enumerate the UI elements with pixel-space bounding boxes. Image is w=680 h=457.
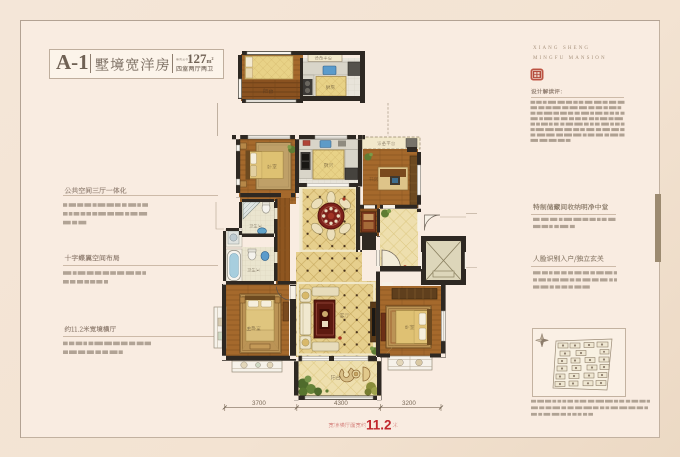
svg-text:3700: 3700 — [252, 400, 266, 407]
svg-text:11.2: 11.2 — [366, 418, 392, 433]
svg-text:3200: 3200 — [402, 400, 416, 407]
svg-text:4300: 4300 — [334, 400, 348, 407]
